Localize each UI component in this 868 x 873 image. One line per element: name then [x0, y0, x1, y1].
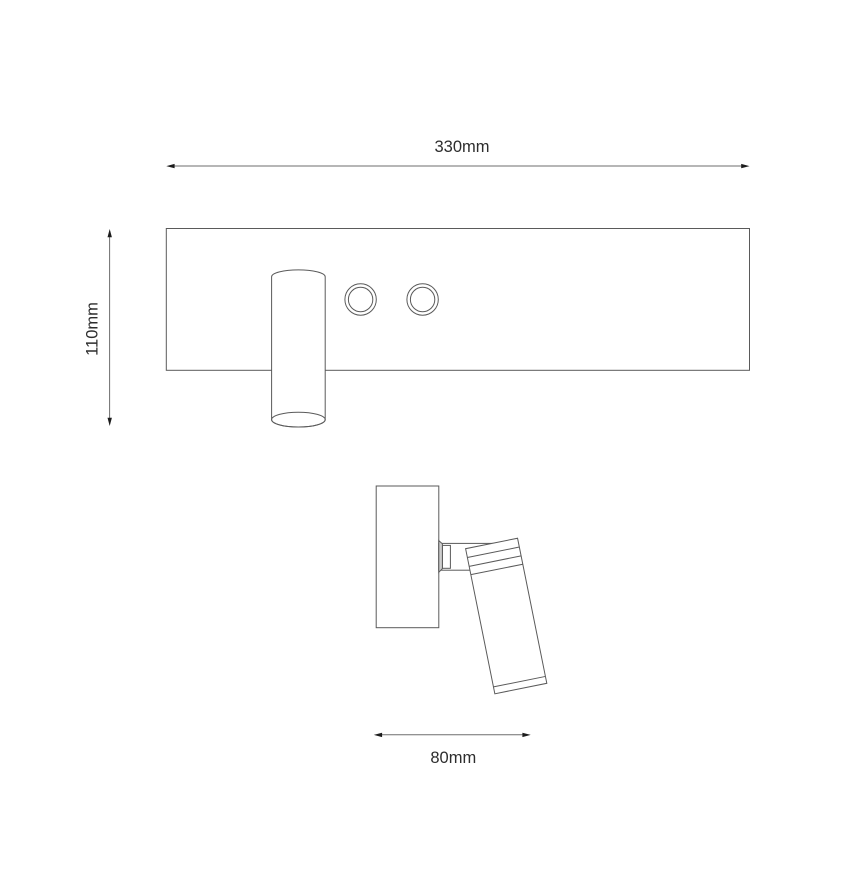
svg-text:80mm: 80mm	[430, 749, 476, 767]
svg-text:110mm: 110mm	[84, 302, 102, 356]
svg-text:330mm: 330mm	[434, 138, 489, 156]
